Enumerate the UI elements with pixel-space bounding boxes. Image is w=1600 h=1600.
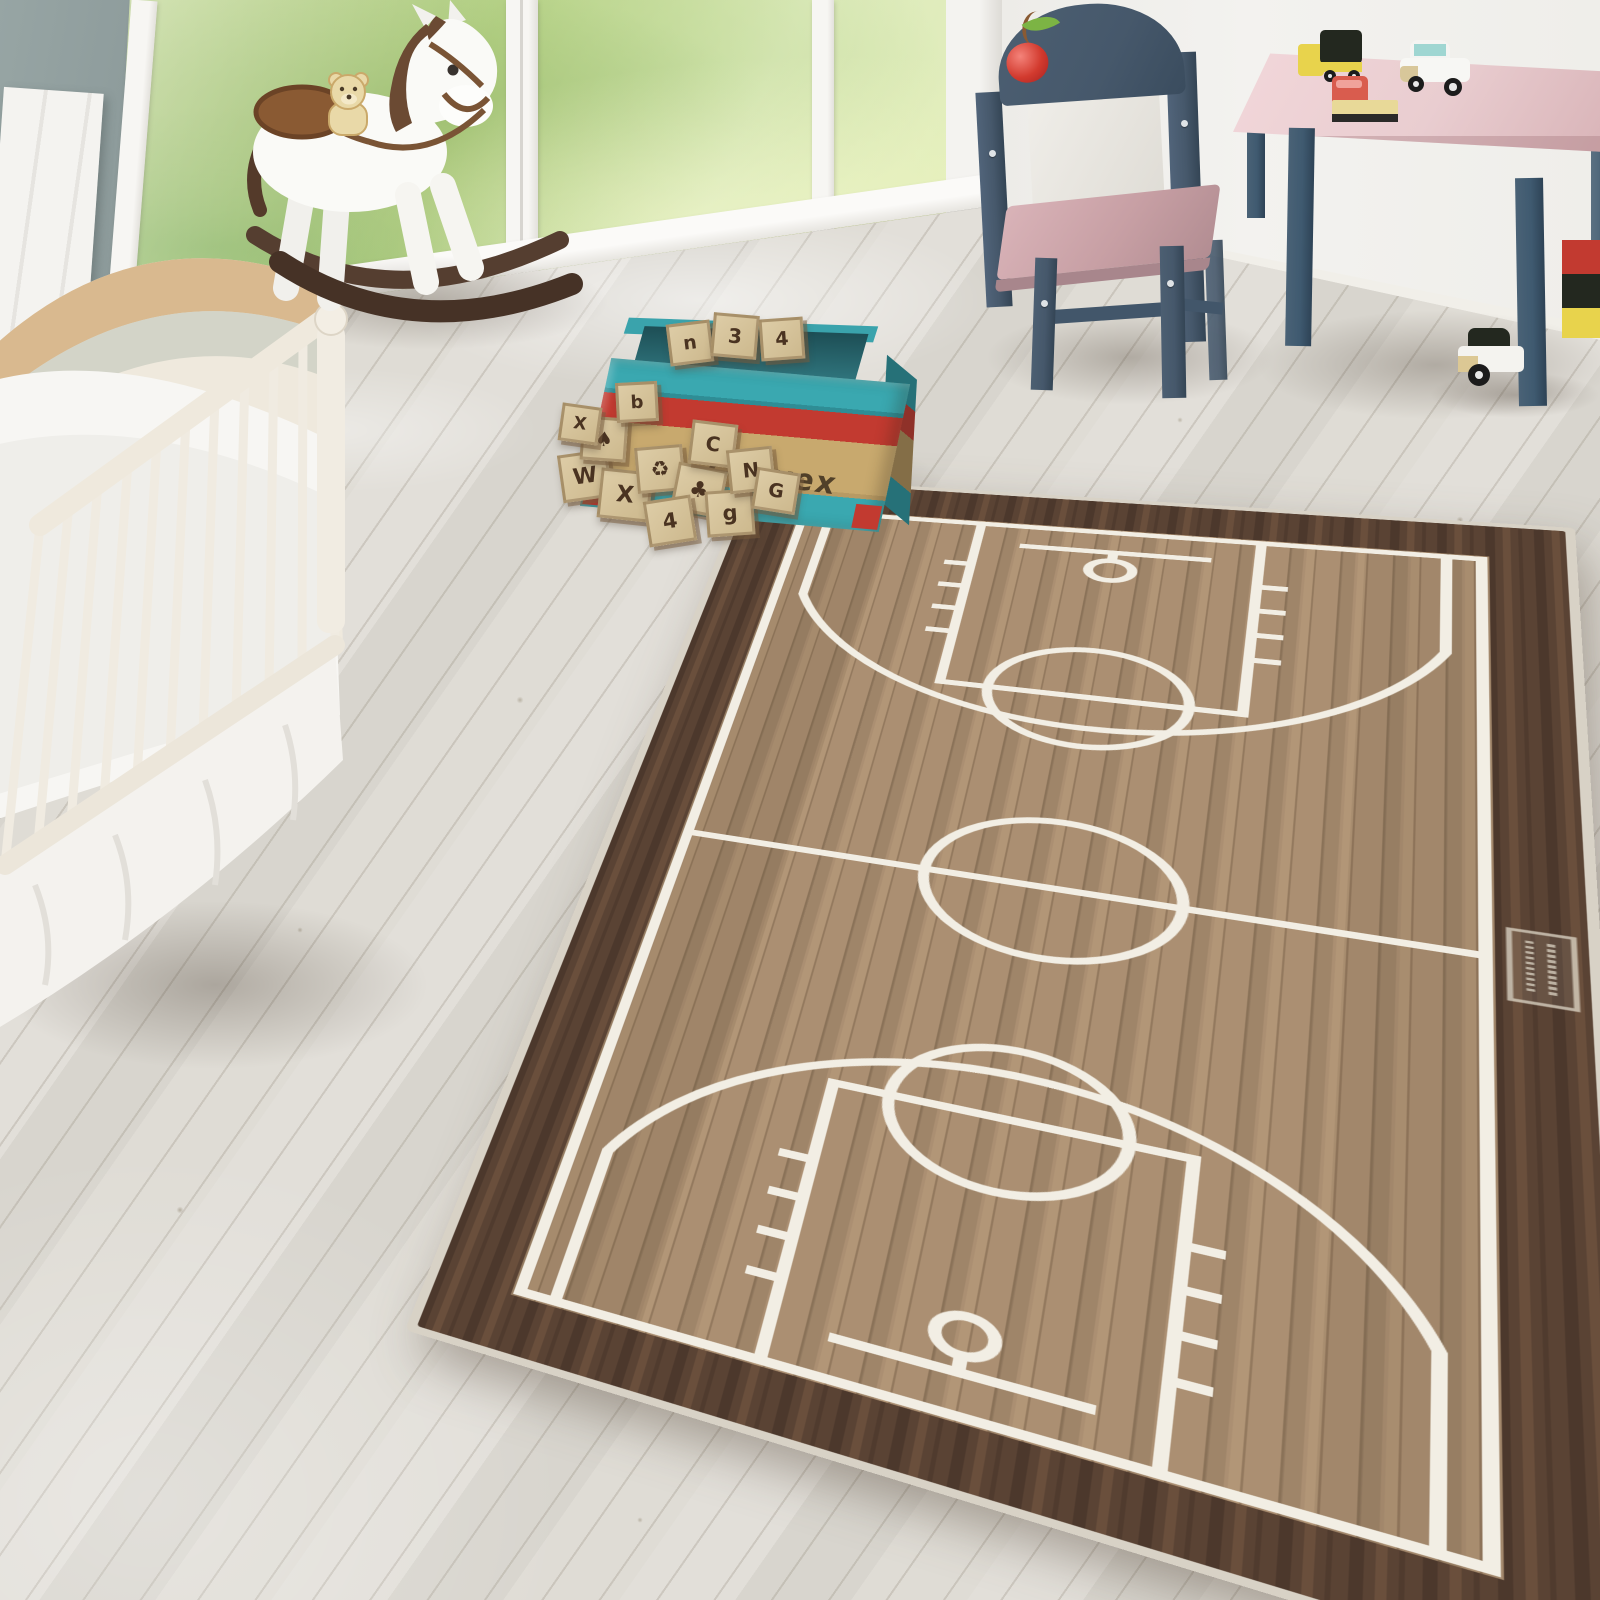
table-leg (1285, 128, 1315, 346)
toy-block: 3 (710, 312, 760, 360)
rocking-horse (240, 0, 590, 340)
toy-block: 4 (759, 317, 806, 362)
chair-top-rail (994, 0, 1186, 106)
chair-seat (996, 184, 1220, 280)
toy-block: n (666, 319, 715, 366)
rug-size-stamp-icon (1509, 929, 1577, 1010)
chair-cross-rail (1045, 301, 1176, 324)
chair-screw (1167, 280, 1174, 287)
table-leg (1247, 122, 1265, 218)
crib-corner-post (315, 303, 347, 633)
floor-toy-truck-cropped (1562, 240, 1600, 350)
toy-block: b (615, 381, 659, 423)
basketball-court-rug (405, 476, 1600, 1600)
nursery-room-scene: convex n 3 4 W X ♻ ♣ g ♠ 4 C N G b X (0, 0, 1600, 1600)
court-field (511, 508, 1504, 1580)
floor-toy-car (1446, 322, 1536, 392)
toy-block: 4 (643, 495, 698, 548)
horse-front-legs (408, 186, 471, 282)
chair-screw (989, 150, 996, 157)
toy-block: g (704, 488, 755, 537)
chair-screw (1041, 300, 1048, 307)
toy-car-white-teal (1400, 40, 1476, 104)
toy-block: G (751, 467, 801, 515)
chair-leg (1160, 246, 1187, 398)
chair-leg (1031, 258, 1058, 391)
toy-block: X (558, 402, 603, 445)
toybox-corner-joint (851, 504, 882, 530)
cherry-fruit (1004, 40, 1051, 85)
cherry-icon (992, 4, 1071, 88)
toy-truck-red (1332, 72, 1402, 124)
chair-screw (1181, 120, 1188, 127)
